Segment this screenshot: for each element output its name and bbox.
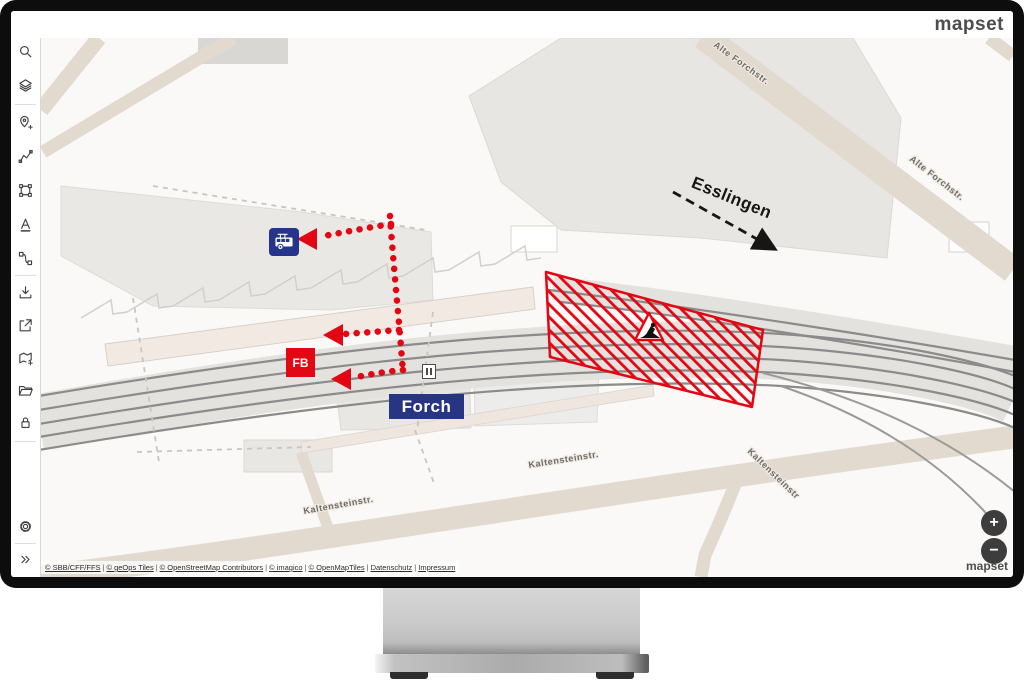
attribution-separator: | [414, 563, 416, 572]
attribution-link[interactable]: © OpenMapTiles [309, 563, 365, 572]
attribution-link[interactable]: Impressum [418, 563, 455, 572]
select-polygon-icon[interactable] [12, 177, 39, 203]
sidebar-separator [15, 275, 36, 276]
mapset-watermark: mapset [966, 559, 1008, 573]
attribution-link[interactable]: © geOps Tiles [106, 563, 153, 572]
attribution-link[interactable]: © SBB/CFF/FFS [45, 563, 101, 572]
attribution-separator: | [305, 563, 307, 572]
fb-platform-marker[interactable]: FB [286, 348, 315, 377]
sidebar-separator [15, 441, 36, 442]
attribution-separator: | [265, 563, 267, 572]
toolbar-sidebar [11, 38, 41, 577]
map-base-layer: Alte Forchstr. Alte Forchstr. Kaltenstei… [41, 38, 1013, 577]
draw-line-icon[interactable] [12, 143, 39, 169]
monitor-stand [383, 588, 640, 656]
text-tool-icon[interactable] [12, 211, 39, 237]
sidebar-separator [15, 104, 36, 105]
download-icon[interactable] [12, 279, 39, 305]
attribution-separator: | [156, 563, 158, 572]
bus-icon [273, 233, 295, 251]
attribution-separator: | [367, 563, 369, 572]
mapset-logo: mapset [934, 14, 1004, 36]
layers-icon[interactable] [12, 72, 39, 98]
settings-gear-icon[interactable] [12, 513, 39, 539]
monitor-foot [596, 672, 634, 679]
station-name-label[interactable]: Forch [389, 394, 464, 419]
add-location-icon[interactable] [12, 109, 39, 135]
monitor-stand-base [375, 654, 649, 673]
lock-icon[interactable] [12, 409, 39, 435]
share-icon[interactable] [12, 312, 39, 338]
attribution-link[interactable]: Datenschutz [371, 563, 413, 572]
open-folder-icon[interactable] [12, 377, 39, 403]
attribution-link[interactable]: © imagico [269, 563, 302, 572]
app-screen: mapset [11, 11, 1013, 577]
add-map-icon[interactable] [12, 345, 39, 371]
attribution-separator: | [103, 563, 105, 572]
monitor-foot [390, 672, 428, 679]
monitor-bezel: mapset [0, 0, 1024, 588]
zoom-in-button[interactable]: + [981, 510, 1007, 536]
bus-stop-marker[interactable] [269, 228, 299, 256]
station-entrance-icon [422, 364, 436, 379]
top-bar: mapset [11, 11, 1013, 38]
map-attribution: © SBB/CFF/FFS|© geOps Tiles|© OpenStreet… [41, 561, 459, 574]
screenshot-stage: mapset [0, 0, 1024, 681]
attribution-link[interactable]: © OpenStreetMap Contributors [160, 563, 264, 572]
expand-sidebar-icon[interactable] [12, 546, 39, 572]
sidebar-separator [15, 543, 36, 544]
route-icon[interactable] [12, 245, 39, 271]
search-icon[interactable] [12, 38, 39, 64]
map-canvas[interactable]: Alte Forchstr. Alte Forchstr. Kaltenstei… [41, 38, 1013, 577]
